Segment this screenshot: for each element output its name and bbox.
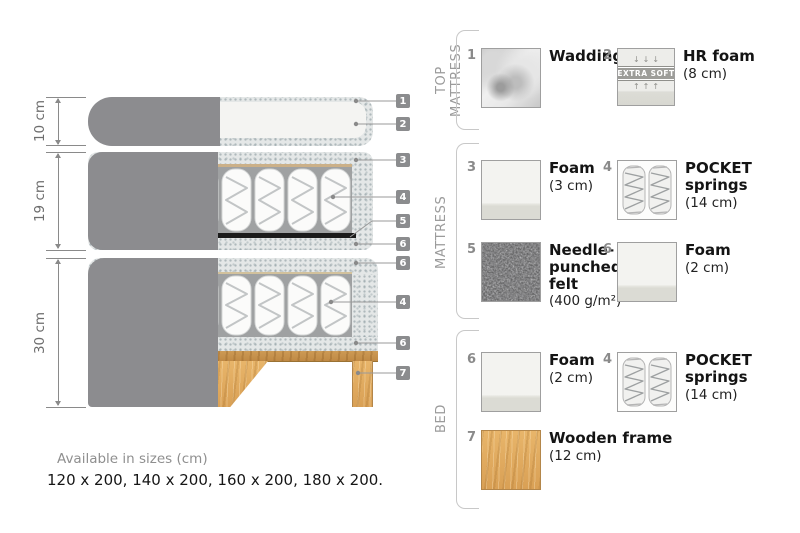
wadding-swatch — [481, 48, 541, 108]
item-number: 7 — [462, 430, 476, 445]
bed-construction-infographic: 10 cm 19 cm 30 cm — [0, 0, 800, 533]
felt-layer — [208, 233, 356, 238]
arrow-up-icon — [55, 153, 61, 158]
wood-swatch — [481, 430, 541, 490]
legend-item-pocket-springs: 4 POCKET springs (14 cm) — [598, 160, 780, 220]
pocket-springs-illustration — [618, 353, 676, 411]
item-number: 4 — [598, 352, 612, 367]
legend-item-pocket-springs-bed: 4 POCKET springs (14 cm) — [598, 352, 780, 412]
callout-badge: 5 — [396, 214, 410, 228]
felt-texture — [482, 243, 540, 301]
callout-badge: 1 — [396, 94, 410, 108]
tick — [46, 258, 86, 259]
item-number: 5 — [462, 242, 476, 257]
foam-swatch — [617, 242, 677, 302]
mattress-diagram — [88, 152, 373, 250]
measurement-label: 19 cm — [32, 171, 48, 231]
item-number: 3 — [462, 160, 476, 175]
tick — [46, 250, 86, 251]
section-title-bed: BED — [434, 394, 449, 444]
callout-badge: 6 — [396, 237, 410, 251]
item-name: POCKET springs — [685, 352, 780, 386]
item-name: HR foam — [683, 48, 778, 65]
section-title-mattress: MATTRESS — [434, 178, 449, 286]
callout-badge: 4 — [396, 190, 410, 204]
arrow-up-icon — [55, 259, 61, 264]
measurement-label: 10 cm — [32, 91, 48, 151]
item-number: 6 — [598, 242, 612, 257]
felt-swatch — [481, 242, 541, 302]
item-name: Wooden frame — [549, 430, 699, 447]
item-number: 4 — [598, 160, 612, 175]
item-dim: (8 cm) — [683, 66, 778, 83]
pocket-springs-swatch — [617, 160, 677, 220]
tick — [46, 97, 86, 98]
callout-badge: 7 — [396, 366, 410, 380]
legend-item-wooden-frame: 7 Wooden frame (12 cm) — [462, 430, 699, 490]
item-dim: (2 cm) — [685, 260, 780, 277]
item-name: POCKET springs — [685, 160, 780, 194]
dimension-line — [58, 154, 59, 248]
hr-foam-swatch: ↓↓↓ EXTRA SOFT ↑↑↑ — [617, 48, 675, 106]
up-arrows-icon: ↑↑↑ — [630, 83, 662, 91]
item-dim: (12 cm) — [549, 448, 699, 465]
callout-badge: 6 — [396, 336, 410, 350]
wood-support-left — [210, 361, 268, 407]
top-mattress-diagram — [88, 97, 373, 146]
arrow-down-icon — [55, 401, 61, 406]
foam-swatch — [481, 160, 541, 220]
measurement-label: 30 cm — [32, 303, 48, 363]
arrow-down-icon — [55, 140, 61, 145]
tick — [46, 145, 86, 146]
dimension-line — [58, 260, 59, 405]
wood-leg-right — [352, 361, 373, 407]
fabric-cover — [88, 97, 220, 146]
legend-item-hr-foam: 2 ↓↓↓ EXTRA SOFT ↑↑↑ HR foam (8 cm) — [598, 48, 778, 106]
fabric-cover — [88, 258, 218, 407]
fabric-cover — [88, 152, 218, 250]
dimension-line — [58, 99, 59, 144]
item-dim: (14 cm) — [685, 387, 780, 404]
item-number: 2 — [598, 48, 612, 63]
arrow-up-icon — [55, 98, 61, 103]
bed-base-diagram — [88, 258, 378, 408]
pocket-springs-illustration — [618, 161, 676, 219]
sizes-title: Available in sizes (cm) — [57, 451, 208, 467]
foam-side-edge — [352, 274, 378, 337]
item-number: 1 — [462, 48, 476, 63]
callout-badge: 4 — [396, 295, 410, 309]
callout-badge: 6 — [396, 256, 410, 270]
arrow-down-icon — [55, 244, 61, 249]
callout-badge: 3 — [396, 153, 410, 167]
item-dim: (14 cm) — [685, 195, 780, 212]
tick — [46, 407, 86, 408]
pocket-springs-swatch — [617, 352, 677, 412]
legend-item-foam-2cm: 6 Foam (2 cm) — [598, 242, 780, 302]
item-number: 6 — [462, 352, 476, 367]
down-arrows-icon: ↓↓↓ — [630, 56, 662, 64]
tick — [46, 152, 86, 153]
item-name: Foam — [685, 242, 780, 259]
foam-swatch — [481, 352, 541, 412]
callout-badge: 2 — [396, 117, 410, 131]
sizes-list: 120 x 200, 140 x 200, 160 x 200, 180 x 2… — [47, 471, 383, 489]
extra-soft-badge: EXTRA SOFT — [617, 66, 675, 81]
